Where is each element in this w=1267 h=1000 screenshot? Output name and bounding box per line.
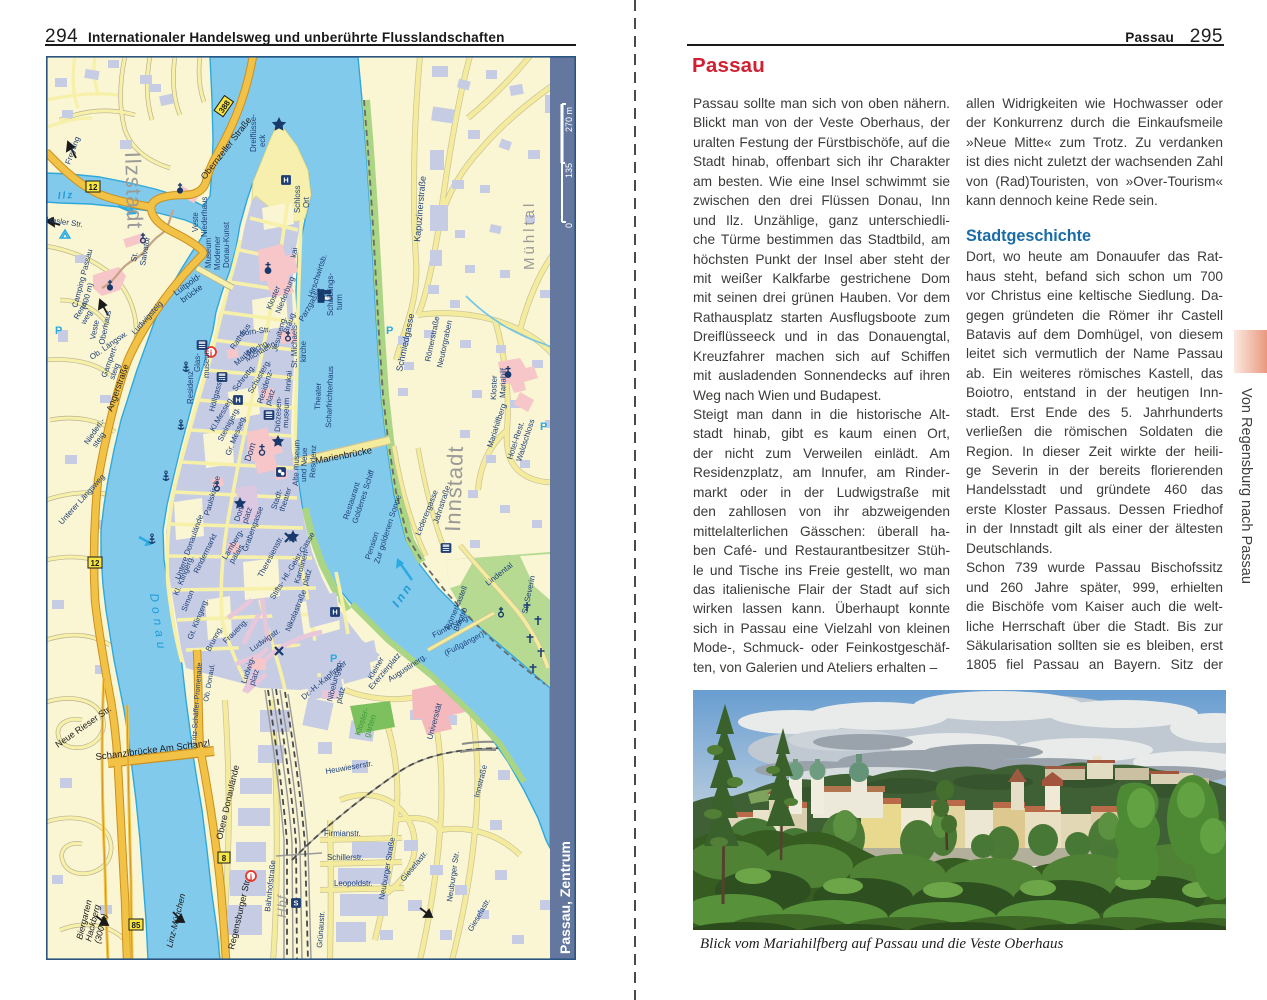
svg-text:Residenz: Residenz <box>186 371 195 404</box>
svg-text:H: H <box>235 396 240 405</box>
svg-text:Schloss: Schloss <box>293 185 302 213</box>
svg-text:Schillerstr.: Schillerstr. <box>327 853 363 862</box>
svg-text:kai: kai <box>289 247 299 258</box>
svg-text:Museum: Museum <box>204 237 213 268</box>
svg-text:St. Michaels-: St. Michaels- <box>290 322 299 368</box>
svg-text:H: H <box>332 608 337 617</box>
svg-text:Ort: Ort <box>302 196 311 208</box>
svg-text:Hbf: Hbf <box>274 894 290 918</box>
svg-text:P: P <box>55 325 62 337</box>
svg-text:Passau, Zentrum: Passau, Zentrum <box>557 841 573 954</box>
svg-text:Niederhaus: Niederhaus <box>200 197 209 237</box>
svg-text:kirche: kirche <box>299 340 308 362</box>
svg-text:8: 8 <box>222 854 227 863</box>
svg-text:Mühltal: Mühltal <box>521 201 538 270</box>
svg-text:Firmianstr.: Firmianstr. <box>324 829 361 838</box>
svg-text:12: 12 <box>91 559 100 568</box>
svg-text:0: 0 <box>564 223 574 228</box>
svg-text:turm: turm <box>335 294 344 310</box>
svg-text:Leopoldstr.: Leopoldstr. <box>334 879 373 888</box>
svg-text:85: 85 <box>132 921 141 930</box>
svg-text:H: H <box>283 176 288 185</box>
svg-text:Innkai: Innkai <box>283 370 294 392</box>
svg-text:P: P <box>540 421 547 433</box>
svg-text:museum: museum <box>281 397 291 428</box>
svg-text:Moderner: Moderner <box>213 236 222 270</box>
svg-text:12: 12 <box>89 183 98 192</box>
svg-text:Glas-: Glas- <box>193 353 202 372</box>
svg-text:270 m: 270 m <box>564 107 574 132</box>
svg-text:P: P <box>386 325 393 337</box>
svg-text:museum: museum <box>202 347 211 378</box>
svg-text:Veste: Veste <box>191 212 200 232</box>
svg-text:Theater: Theater <box>313 382 323 410</box>
svg-text:Mariahilf: Mariahilf <box>498 367 508 398</box>
svg-text:Ilz: Ilz <box>57 190 74 202</box>
svg-text:S: S <box>294 899 299 908</box>
svg-text:135: 135 <box>564 163 574 178</box>
svg-text:eck: eck <box>258 135 267 147</box>
svg-text:Ilzstadt: Ilzstadt <box>120 151 148 230</box>
svg-text:Donau-Kunst: Donau-Kunst <box>222 221 231 268</box>
svg-text:Schaiblings-: Schaiblings- <box>326 273 335 316</box>
